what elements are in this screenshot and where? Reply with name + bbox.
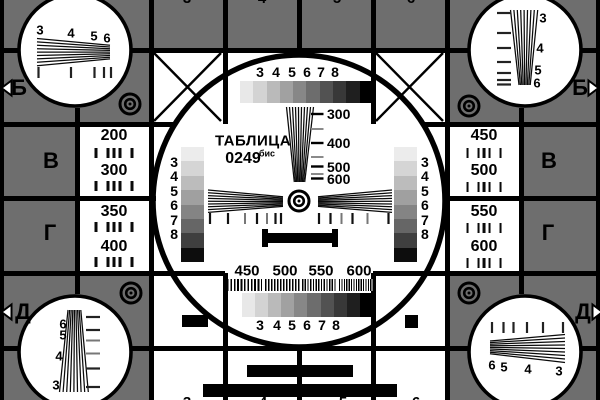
grayscale-staircase-left	[181, 147, 204, 262]
freq-tick	[488, 182, 490, 192]
freq-tick	[478, 258, 480, 268]
freq-ticks-350	[95, 222, 134, 232]
stair-label-right: 6	[421, 198, 429, 212]
arrow-left-b-icon	[2, 81, 12, 96]
freq-tick	[131, 222, 134, 232]
grayscale-step	[253, 81, 266, 103]
stair-label-left: 4	[170, 169, 178, 183]
freq-ticks-500	[467, 182, 502, 192]
wedge-corner-top-right	[526, 10, 528, 85]
freq-tick	[499, 258, 501, 268]
grayscale-step	[394, 190, 417, 204]
grayscale-step	[181, 176, 204, 190]
row-label-left-d: Д	[15, 301, 31, 323]
column-digit-top: 6	[407, 0, 415, 6]
burst-600	[339, 279, 373, 291]
freq-tick	[95, 148, 98, 158]
row-label-left-g: Г	[44, 222, 56, 244]
grayscale-step	[181, 205, 204, 219]
grayscale-step	[333, 81, 346, 103]
grayscale-step	[346, 81, 359, 103]
black-reference-bar-cap-left	[262, 229, 268, 247]
row-label-right-b: Б	[572, 77, 588, 99]
corner-tl-label: 3	[36, 24, 43, 37]
grayscale-step	[307, 293, 320, 317]
grayscale-step	[394, 233, 417, 247]
grayscale-bar-bottom	[242, 293, 373, 317]
burst-450	[227, 279, 262, 291]
card-title: ТАБЛИЦА	[215, 134, 291, 149]
grayscale-step	[320, 81, 333, 103]
bullseye-target-icon	[120, 94, 140, 114]
grayscale-step	[294, 293, 307, 317]
bottom-black-bar-lower	[203, 384, 397, 397]
stair-label-right: 7	[421, 213, 429, 227]
arrow-right-d-icon	[593, 305, 600, 320]
corner-tl-label: 5	[90, 29, 97, 42]
freq-tick	[483, 258, 485, 268]
black-rect-left	[182, 315, 208, 327]
freq-tick	[95, 257, 98, 267]
column-digit-bottom: 4	[259, 395, 267, 400]
grayscale-staircase-right	[394, 147, 417, 262]
freq-ticks-600	[467, 258, 502, 268]
stair-label-right: 4	[421, 169, 429, 183]
freq-cell-350: 350	[101, 204, 128, 220]
resolution-label-300: 300	[327, 107, 350, 121]
grayscale-step	[181, 248, 204, 262]
grayscale-step	[360, 81, 373, 103]
grayscale-step	[394, 205, 417, 219]
freq-tick	[107, 222, 110, 232]
row-label-right-d: Д	[575, 301, 591, 323]
burst-label-600: 600	[346, 264, 371, 279]
freq-ticks-200	[95, 148, 134, 158]
freq-ticks-300	[95, 181, 134, 191]
freq-cell-600: 600	[471, 239, 498, 255]
column-digit-top: 4	[258, 0, 266, 6]
grayscale-step	[242, 293, 255, 317]
topbar-label: 8	[331, 65, 339, 79]
freq-tick	[478, 223, 480, 233]
freq-cell-200: 200	[101, 128, 128, 144]
freq-tick	[95, 181, 98, 191]
freq-tick	[107, 257, 110, 267]
wedge-corner-bottom-right	[490, 347, 565, 348]
bottombar-label: 8	[332, 318, 340, 332]
burst-500	[265, 279, 300, 291]
freq-tick	[467, 223, 469, 233]
freq-tick	[95, 222, 98, 232]
grayscale-step	[394, 248, 417, 262]
grayscale-step	[394, 176, 417, 190]
wedge-corner-bottom-left	[74, 310, 75, 392]
grayscale-step	[181, 147, 204, 161]
burst-label-450: 450	[234, 264, 259, 279]
freq-ticks-550	[467, 223, 502, 233]
grayscale-step	[181, 219, 204, 233]
freq-tick	[467, 182, 469, 192]
bottombar-label: 7	[318, 318, 326, 332]
burst-550	[302, 279, 337, 291]
arrow-right-b-icon	[589, 81, 599, 96]
grayscale-step	[394, 147, 417, 161]
grayscale-bar-top	[240, 81, 373, 103]
freq-tick	[478, 182, 480, 192]
stair-label-left: 6	[170, 198, 178, 212]
freq-ticks-450	[467, 148, 502, 158]
bullseye-target-icon	[459, 283, 479, 303]
bottom-black-bar-upper	[247, 365, 353, 378]
freq-tick	[467, 258, 469, 268]
column-digit-bottom: 3	[183, 395, 191, 400]
topbar-label: 3	[256, 65, 264, 79]
stair-label-right: 8	[421, 227, 429, 241]
corner-br-label: 4	[524, 362, 531, 375]
grayscale-step	[334, 293, 347, 317]
arrow-left-d-icon	[2, 305, 12, 320]
grayscale-step	[280, 81, 293, 103]
corner-tr-label: 4	[536, 42, 543, 55]
wedges-and-ticks	[37, 10, 565, 392]
row-label-left-v: В	[43, 150, 59, 172]
corner-tr-label: 3	[539, 12, 546, 25]
freq-cell-300: 300	[101, 163, 128, 179]
column-digit-top: 5	[333, 0, 341, 6]
bottombar-label: 5	[288, 318, 296, 332]
grayscale-step	[306, 81, 319, 103]
stair-label-left: 5	[170, 184, 178, 198]
freq-tick	[499, 182, 501, 192]
corner-br-label: 5	[500, 360, 507, 373]
freq-cell-450: 450	[471, 128, 498, 144]
stair-label-left: 7	[170, 213, 178, 227]
grayscale-step	[281, 293, 294, 317]
black-reference-bar	[265, 233, 335, 244]
grayscale-step	[268, 293, 281, 317]
stair-label-right: 5	[421, 184, 429, 198]
bottombar-label: 4	[273, 318, 281, 332]
row-label-left-b: Б	[11, 77, 27, 99]
freq-tick	[107, 148, 110, 158]
corner-tr-label: 6	[533, 77, 540, 90]
freq-cell-550: 550	[471, 204, 498, 220]
wedge-corner-top-left	[37, 54, 110, 56]
freq-tick	[119, 148, 122, 158]
freq-tick	[119, 222, 122, 232]
burst-label-550: 550	[308, 264, 333, 279]
corner-br-label: 3	[555, 365, 562, 378]
freq-tick	[488, 148, 490, 158]
topbar-label: 6	[303, 65, 311, 79]
card-code-suffix: бис	[259, 150, 275, 159]
black-rect-right	[405, 315, 418, 328]
freq-tick	[499, 223, 501, 233]
corner-bl-label: 5	[59, 328, 66, 341]
resolution-label-600: 600	[327, 172, 350, 186]
freq-tick	[488, 258, 490, 268]
row-label-right-g: Г	[542, 222, 554, 244]
freq-cell-500: 500	[471, 163, 498, 179]
corner-tl-label: 6	[103, 31, 110, 44]
grayscale-step	[321, 293, 334, 317]
pattern-layer	[0, 0, 600, 400]
freq-tick	[119, 257, 122, 267]
freq-tick	[488, 223, 490, 233]
bottombar-label: 3	[256, 318, 264, 332]
topbar-label: 5	[288, 65, 296, 79]
grayscale-step	[293, 81, 306, 103]
freq-tick	[131, 257, 134, 267]
row-label-right-v: В	[541, 150, 557, 172]
freq-tick	[113, 181, 116, 191]
freq-tick	[119, 181, 122, 191]
grayscale-step	[360, 293, 373, 317]
bullseye-target-icon	[121, 283, 141, 303]
topbar-label: 4	[272, 65, 280, 79]
wedge-corner-top-left	[37, 49, 110, 51]
card-code: 0249	[225, 151, 261, 167]
freq-ticks-400	[95, 257, 134, 267]
freq-tick	[483, 223, 485, 233]
grayscale-step	[181, 190, 204, 204]
grayscale-step	[255, 293, 268, 317]
stair-label-left: 3	[170, 155, 178, 169]
freq-cell-400: 400	[101, 239, 128, 255]
freq-tick	[131, 181, 134, 191]
bottombar-label: 6	[303, 318, 311, 332]
wedge-corner-bottom-right	[490, 345, 565, 346]
grayscale-step	[240, 81, 253, 103]
freq-tick	[483, 148, 485, 158]
stair-label-right: 3	[421, 155, 429, 169]
freq-tick	[483, 182, 485, 192]
tv-test-card: ТАБЛИЦА 0249 бис 3 4 5 6 7 8 3 4 5 6 7 8…	[0, 0, 600, 400]
grayscale-step	[394, 161, 417, 175]
grayscale-step	[181, 233, 204, 247]
bullseye-target-icon	[459, 96, 479, 116]
stair-label-left: 8	[170, 227, 178, 241]
grayscale-step	[347, 293, 360, 317]
freq-tick	[113, 222, 116, 232]
freq-tick	[478, 148, 480, 158]
burst-label-500: 500	[272, 264, 297, 279]
freq-tick	[499, 148, 501, 158]
black-reference-bar-cap-right	[332, 229, 338, 247]
grayscale-step	[181, 161, 204, 175]
topbar-label: 7	[317, 65, 325, 79]
freq-tick	[113, 257, 116, 267]
resolution-label-400: 400	[327, 136, 350, 150]
corner-bl-label: 3	[52, 379, 59, 392]
bullseye-target-icon	[289, 191, 309, 211]
grayscale-step	[394, 219, 417, 233]
column-digit-bottom: 5	[339, 395, 347, 400]
freq-tick	[131, 148, 134, 158]
freq-tick	[113, 148, 116, 158]
freq-tick	[467, 148, 469, 158]
corner-tl-label: 4	[67, 27, 74, 40]
corner-bl-label: 4	[55, 350, 62, 363]
column-digit-bottom: 6	[412, 395, 420, 400]
corner-br-label: 6	[488, 358, 495, 371]
wedge-corner-bottom-left	[76, 310, 78, 392]
grayscale-step	[267, 81, 280, 103]
wedge-corner-top-right	[524, 10, 525, 85]
freq-tick	[107, 181, 110, 191]
column-digit-top: 3	[183, 0, 191, 6]
